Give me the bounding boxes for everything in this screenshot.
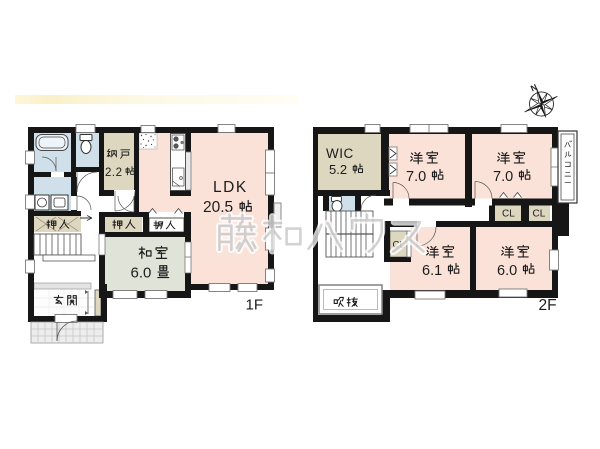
svg-text:CL: CL — [502, 209, 515, 220]
svg-text:2.2: 2.2 — [105, 167, 123, 179]
svg-text:6.1: 6.1 — [422, 263, 442, 279]
svg-text:CL: CL — [533, 209, 546, 220]
svg-text:WIC: WIC — [326, 146, 354, 161]
svg-text:LDK: LDK — [213, 179, 248, 196]
svg-text:7.0: 7.0 — [493, 169, 513, 185]
svg-text:6.0: 6.0 — [497, 263, 517, 279]
svg-text:7.0: 7.0 — [406, 169, 426, 185]
svg-text:1F: 1F — [246, 297, 264, 314]
svg-text:6.0: 6.0 — [131, 265, 152, 282]
svg-text:5.2: 5.2 — [329, 162, 347, 177]
svg-text:2F: 2F — [539, 297, 557, 314]
